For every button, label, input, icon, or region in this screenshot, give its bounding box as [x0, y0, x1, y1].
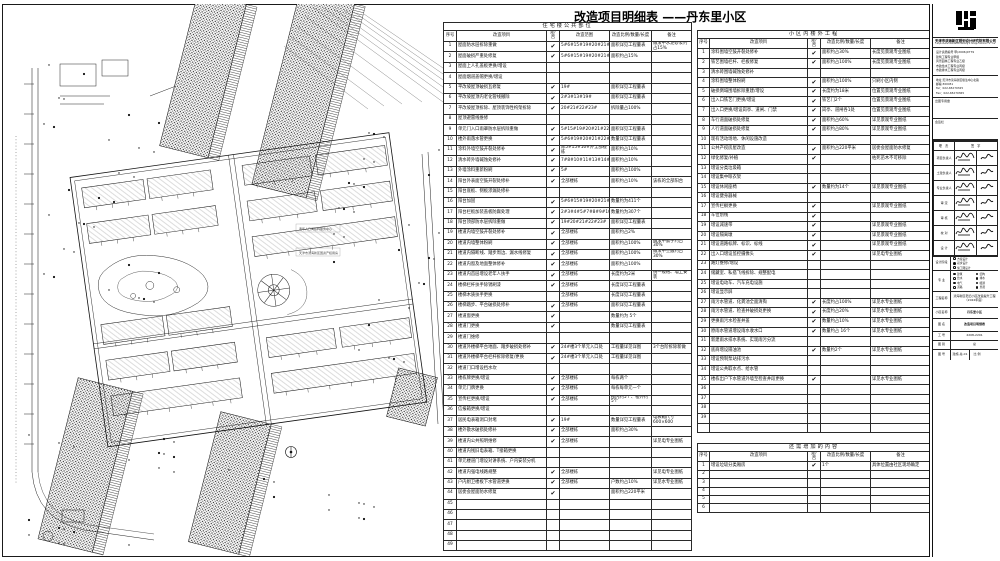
cell: 车位划线	[710, 212, 808, 222]
cell: 5#6#15#19#20#21#22#23#	[560, 42, 610, 52]
cell	[652, 333, 692, 343]
cell: 数量约2个	[821, 346, 871, 356]
column-header: 改造范围	[560, 31, 610, 42]
cell: 居民电表箱洞口封堵	[457, 416, 547, 426]
check-cell	[547, 114, 560, 124]
cell: 路灯维修/增设	[710, 260, 808, 270]
table-row: 28雨污水管道、检查井破损处更换✔长度约占20%详见水专业图纸	[698, 308, 931, 318]
row-number: 12	[444, 156, 457, 166]
column-header: 是/否	[808, 39, 821, 49]
table-row: 2铁艺围墙栏杆、栏板修复✔面积约占100%长度见景观专业图纸	[698, 59, 931, 69]
cell	[610, 447, 652, 457]
row-number: 30	[698, 327, 710, 337]
table-row: 36信报箱更换/增设	[444, 405, 692, 415]
cell	[821, 174, 871, 184]
table-title: 小区内楼外工程	[698, 31, 931, 39]
cell	[652, 260, 692, 270]
cell	[457, 530, 547, 540]
cell: 全部楼栋	[560, 437, 610, 447]
checkmark: ✔	[547, 218, 560, 228]
cell: 楼内约5个、楼外约5个	[610, 395, 652, 405]
signature-table: 职 责 签 字 项目负责人土建负责人专业负责人审 定审 核校 对设 计	[933, 141, 998, 257]
cell	[821, 193, 871, 203]
check-cell	[808, 174, 821, 184]
table-row: 38楼外散水破损处修补✔全部楼栋面积约占30%	[444, 426, 692, 436]
cell	[710, 404, 808, 414]
row-number: 4	[698, 487, 710, 495]
table-row: 16增设健身器械	[698, 193, 931, 203]
cell: 拆除量占100%	[610, 104, 652, 114]
table-row: 21增设道路标牌、标识、标线✔详见景观专业图纸	[698, 241, 931, 251]
cell	[821, 487, 871, 495]
row-number: 23	[698, 260, 710, 270]
table-row: 37居民电表箱洞口封堵✔19#数量详见工程量表电表箱尺寸600×600	[444, 416, 692, 426]
cell: 阳台底板、侧板渗漏处修补	[457, 187, 547, 197]
column-header: 改造项目	[457, 31, 547, 42]
signature-row: 土建负责人	[934, 165, 998, 180]
cell	[652, 457, 692, 467]
cell: 该栋的全部阳台	[652, 177, 692, 187]
cell	[821, 135, 871, 145]
number-field: 图 号 建施-总-01 比 例	[933, 350, 998, 360]
table-row: 42楼道内强电线路规整✔全部楼栋详见电专业图纸	[444, 468, 692, 478]
cell	[821, 394, 871, 404]
row-number: 26	[444, 302, 457, 312]
table-row: 30楼道外楼梯平台地面、踏步破损处修补✔24#楼3个单元入口处工程量详见详图3个…	[444, 343, 692, 353]
cell: 24#楼3个单元入口处	[560, 353, 610, 363]
table-row: 21楼道内隔断线、踏步周边、漏水线修复✔全部楼栋面积约占100%做法中空鼓约占3…	[444, 249, 692, 259]
cell: 长度详见工程量表	[610, 281, 652, 291]
table-row: 46	[444, 509, 692, 519]
checkmark: ✔	[808, 59, 821, 69]
table-row: 20楼道内墙整体粉刷✔全部楼栋面积约占100%做法中腻子约占30%	[444, 239, 692, 249]
cell	[821, 270, 871, 280]
table-row: 4	[698, 487, 931, 495]
cell: 面积约占100%	[821, 59, 871, 69]
column-header: 改造比例/数量/长度	[610, 31, 652, 42]
row-number: 31	[444, 353, 457, 363]
cell: 详见水专业图纸	[871, 318, 931, 328]
cell	[610, 364, 652, 374]
table-row: 2屋面破损严重处修复✔5#6#15#19#20#21#22#23#面积约占15%	[444, 52, 692, 62]
cell	[560, 499, 610, 509]
cell: 具体位置由社区现场确定	[871, 462, 931, 470]
table-row: 18阳台顶部防水层拆除重做✔19#20#21#22#23#面积详见工程量表	[444, 218, 692, 228]
row-number: 5	[444, 83, 457, 93]
cell: 平改坡屋顶内老化管线撤除	[457, 94, 547, 104]
major-option: 排水	[976, 276, 997, 280]
cell: 全部楼栋	[560, 395, 610, 405]
cell	[871, 479, 931, 487]
checkmark: ✔	[547, 426, 560, 436]
cell: 面积约占100%	[610, 239, 652, 249]
cell: 详见水专业图纸	[871, 298, 931, 308]
cell	[871, 470, 931, 478]
table-row: 35楼栋出户下水管道外墙至检查井段更换✔详见水专业图纸	[698, 375, 931, 385]
cell	[652, 541, 692, 551]
residential-table: 住宅楼公共部位 序号改造项目是/否改造范围改造比例/数量/长度备注 1屋面防水层…	[443, 22, 692, 551]
signature-row: 项目负责人	[934, 150, 998, 165]
checkmark: ✔	[547, 395, 560, 405]
check-cell	[808, 68, 821, 78]
cell: 详见景观专业图纸	[871, 222, 931, 232]
checkmark: ✔	[808, 78, 821, 88]
row-number: 27	[698, 298, 710, 308]
cell	[871, 487, 931, 495]
cell: 楼道门口增设挡水坎	[457, 364, 547, 374]
table-row: 13增设分类垃圾箱	[698, 164, 931, 174]
cell	[560, 333, 610, 343]
cell	[821, 479, 871, 487]
row-number: 4	[444, 73, 457, 83]
cell: 面积约占100%	[821, 78, 871, 88]
checkmark: ✔	[547, 302, 560, 312]
check-cell	[547, 541, 560, 551]
cell: 详见景观专业图纸	[871, 183, 931, 193]
signature-mark	[955, 225, 976, 240]
signature-stamp	[976, 150, 997, 165]
radio-icon	[976, 277, 979, 280]
cell	[871, 356, 931, 366]
cell	[652, 229, 692, 239]
cell	[652, 166, 692, 176]
block-field: 小区名称 丹东里小区	[933, 308, 998, 319]
cell: 底商增设隔油池	[710, 346, 808, 356]
cell: 涂料围墙整体粉刷	[710, 78, 808, 88]
checkmark: ✔	[808, 212, 821, 222]
checkmark: ✔	[547, 125, 560, 135]
radio-icon	[953, 286, 956, 289]
row-number: 20	[698, 231, 710, 241]
cell: 公共产权房屋改造	[710, 145, 808, 155]
cell: 增设公共取水点、给水管	[710, 366, 808, 376]
cell	[821, 68, 871, 78]
row-number: 37	[444, 416, 457, 426]
row-number: 16	[698, 193, 710, 203]
cell	[652, 197, 692, 207]
cell: 宣传栏橱更换	[710, 202, 808, 212]
cell: 24#楼3个单元入口处	[560, 343, 610, 353]
cell	[560, 405, 610, 415]
cell: 详见景观专业图纸	[871, 231, 931, 241]
radio-icon	[976, 273, 979, 276]
check-cell	[547, 73, 560, 83]
cell: 户内厨卫楼板下水管道更换	[457, 478, 547, 488]
cell: 楼道外楼梯平台地面、踏步破损处修补	[457, 343, 547, 353]
cell	[457, 541, 547, 551]
check-cell	[808, 270, 821, 280]
row-number: 14	[698, 174, 710, 184]
cell	[560, 73, 610, 83]
checkmark: ✔	[808, 462, 821, 470]
column-header: 改造比例/数量/长度	[821, 39, 871, 49]
sheet-number: 建施-总-01	[951, 350, 969, 360]
checkmark: ✔	[808, 107, 821, 117]
row-number: 47	[444, 520, 457, 530]
cell	[821, 231, 871, 241]
sheet-name: 改造项目明细表	[951, 319, 998, 331]
cell	[821, 289, 871, 299]
row-number: 5	[698, 496, 710, 504]
cell: 7#8#10#11#13#14#16#	[560, 156, 610, 166]
row-number: 24	[698, 270, 710, 280]
row-number: 8	[444, 114, 457, 124]
checkmark: ✔	[547, 416, 560, 426]
cell: 阳台顶部防水层拆除重做	[457, 218, 547, 228]
major-option: 结构	[976, 272, 997, 276]
cell: 5#	[560, 166, 610, 176]
check-cell	[808, 470, 821, 478]
row-number: 22	[444, 260, 457, 270]
cell	[821, 375, 871, 385]
cell: 面积详见工程量表	[610, 42, 652, 52]
table-row: 33楼栋牌更换/增设✔全部楼栋每栋两个	[444, 374, 692, 384]
check-cell	[547, 499, 560, 509]
cell: 增设预制泵站排污水	[710, 356, 808, 366]
cell	[871, 193, 931, 203]
cell: 每栋每单元一个	[610, 385, 652, 395]
radio-icon	[953, 273, 956, 276]
cell: 雨污水管道、检查井破损处更换	[710, 308, 808, 318]
checkmark: ✔	[547, 489, 560, 499]
cell: 5#15#19#20#21#22#23#	[560, 125, 610, 135]
cell: 屋面上人孔盖板更换/增设	[457, 62, 547, 72]
stage-option: 施工图设计	[953, 266, 996, 270]
radio-icon	[953, 277, 956, 280]
check-cell	[547, 447, 560, 457]
marker-circle	[286, 447, 297, 458]
row-number: 1	[444, 42, 457, 52]
cell	[560, 62, 610, 72]
table-row: 32楼道门口增设挡水坎	[444, 364, 692, 374]
cell	[457, 520, 547, 530]
signature-stamp	[976, 195, 997, 210]
cell: 电表箱尺寸600×600	[652, 416, 692, 426]
cell	[871, 135, 931, 145]
cell	[652, 302, 692, 312]
cell	[652, 73, 692, 83]
row-number: 42	[444, 468, 457, 478]
table-row: 1涂料围墙空鼓开裂处修补✔面积约占30%长度见景观专业图纸	[698, 49, 931, 59]
table-row: 24储藏室、私搭飞线拆除、规整配电	[698, 270, 931, 280]
cell	[610, 405, 652, 415]
cell: 面积详见工程量表	[610, 83, 652, 93]
cell	[871, 385, 931, 395]
cell	[821, 404, 871, 414]
checkmark: ✔	[547, 135, 560, 145]
checkmark: ✔	[547, 353, 560, 363]
contact-info: 地址:天津市滨海新区塘沽中心北路邮编:300451Tel：022-6527032…	[933, 76, 998, 98]
table-row: 7平改坡屋顶拆除、屋顶装饰性构架拆除✔20#21#22#23#拆除量占100%	[444, 104, 692, 114]
check-cell	[547, 457, 560, 467]
checkmark: ✔	[547, 104, 560, 114]
cell: 详见电专业图纸	[652, 468, 692, 478]
cell: 增设健身器械	[710, 193, 808, 203]
row-number: 4	[698, 78, 710, 88]
sign-role: 设 计	[934, 240, 955, 255]
cell	[610, 73, 652, 83]
cell: 详见水专业图纸	[652, 478, 692, 488]
row-number: 29	[698, 318, 710, 328]
checkmark: ✔	[547, 83, 560, 93]
row-number: 7	[698, 107, 710, 117]
sheet-field: 图 名 改造项目明细表	[933, 319, 998, 332]
check-cell	[547, 520, 560, 530]
cell	[610, 541, 652, 551]
cell: 详见电专业图纸	[871, 250, 931, 260]
cell	[710, 414, 808, 424]
check-cell	[808, 479, 821, 487]
cell: 面积约占100%	[610, 166, 652, 176]
cell: 屋顶避雷线维修	[457, 114, 547, 124]
cell	[710, 470, 808, 478]
site-plan: 老年人日间照料服务中心 天津市滨海新区国资产权用房	[2, 4, 447, 557]
row-number: 2	[698, 470, 710, 478]
cell: 3个台阶拆除新做	[652, 343, 692, 353]
check-cell	[808, 487, 821, 495]
cell: 屋面防水层拆除重做	[457, 42, 547, 52]
cell	[652, 385, 692, 395]
cell	[821, 470, 871, 478]
row-number: 17	[444, 208, 457, 218]
table-row: 16阳台加固✔5#6#15#19#20#21#22#23#数量约为411个	[444, 197, 692, 207]
table-row: 6平改坡屋顶内老化管线撤除✔2#3#13#19#面积详见工程量表	[444, 94, 692, 104]
table-row: 27雨污水管道、化粪池全面清掏✔长度约占100%详见水专业图纸	[698, 298, 931, 308]
table-row: 3	[698, 479, 931, 487]
table-row: 10楼外雨落水管更换✔5#6#19#20#21#22#23#数量详见工程量表	[444, 135, 692, 145]
cell	[871, 504, 931, 512]
check-cell	[808, 394, 821, 404]
stamp-box: 出图专用章	[933, 98, 998, 119]
signature-mark	[955, 180, 976, 195]
row-number: 27	[444, 312, 457, 322]
checkmark: ✔	[547, 229, 560, 239]
cell	[560, 520, 610, 530]
stage-field: 设计阶段 方案设计初步设计施工图设计	[933, 257, 998, 271]
checkmark: ✔	[547, 385, 560, 395]
row-number: 39	[444, 437, 457, 447]
cell	[821, 164, 871, 174]
cell	[610, 520, 652, 530]
table-row: 35宣传栏更换/增设✔全部楼栋楼内约5个、楼外约5个	[444, 395, 692, 405]
cell: 面积详见工程量表	[610, 218, 652, 228]
cell: 平改坡屋顶破损瓦修复	[457, 83, 547, 93]
row-number: 31	[698, 337, 710, 347]
cell	[652, 281, 692, 291]
cell: 楼道窗更换	[457, 312, 547, 322]
major-option: 给水	[953, 276, 974, 280]
cell: 楼道内公共照明维修	[457, 437, 547, 447]
cell: 数量约为 5个	[610, 312, 652, 322]
scale-value	[984, 350, 998, 360]
check-cell	[547, 405, 560, 415]
cell: 数量详见工程量表	[610, 322, 652, 332]
table-row: 4屋面烟道盖帽更换/增设	[444, 73, 692, 83]
category-field: 图 别 总	[933, 341, 998, 350]
table-row: 5平改坡屋顶破损瓦修复✔19#面积详见工程量表	[444, 83, 692, 93]
row-number: 39	[698, 414, 710, 424]
row-number: 41	[444, 457, 457, 467]
cell: 面积约占10%	[610, 145, 652, 155]
cell: 全部楼栋	[560, 426, 610, 436]
cell: 面积约占10%	[610, 177, 652, 187]
cell	[821, 385, 871, 395]
row-number: 43	[444, 478, 457, 488]
major-option: 建筑	[953, 272, 974, 276]
table-row: 9人行道面破损处修复✔面积约占80%详见景观专业图纸	[698, 126, 931, 136]
drawing-sheet: 老年人日间照料服务中心 天津市滨海新区国资产权用房 改造项目明细表 ——丹东里小…	[0, 0, 1000, 561]
cell	[652, 187, 692, 197]
category-value: 总	[951, 341, 998, 349]
cell: 做法中腻子约占30%	[652, 239, 692, 249]
cell	[652, 135, 692, 145]
job-number: 2208-2201	[951, 332, 998, 340]
cell: 做法中空鼓约占30%	[652, 249, 692, 259]
row-number: 18	[698, 212, 710, 222]
cell: 楼道内窗及地面整体修补	[457, 260, 547, 270]
checkmark: ✔	[808, 222, 821, 232]
cell: 面积详见工程量表	[610, 302, 652, 312]
cell: 面积约占100%	[610, 260, 652, 270]
sign-role: 校 对	[934, 225, 955, 240]
checkmark: ✔	[547, 52, 560, 62]
cell	[610, 468, 652, 478]
table-row: 8屋顶避雷线维修	[444, 114, 692, 124]
cell: 破损倒塌围墙拆除重建/增设	[710, 87, 808, 97]
table-row: 3清水砖围墙碱蚀处修补	[698, 68, 931, 78]
cell: 涂料围墙空鼓开裂处修补	[710, 49, 808, 59]
title-block: 天津市滨海新区规划设计研究院有限公司 Tianjin Binhai New Ar…	[929, 4, 997, 557]
checkmark: ✔	[547, 145, 560, 155]
row-number: 5	[698, 87, 710, 97]
signature-stamp	[976, 180, 997, 195]
row-number: 3	[698, 479, 710, 487]
checkmark: ✔	[547, 166, 560, 176]
cell: 位置见景观专业图纸	[871, 97, 931, 107]
cell: 阳台栏板加装盖板防腐处理	[457, 208, 547, 218]
cell	[652, 509, 692, 519]
cell	[871, 289, 931, 299]
table-title: 还需增加的内容	[698, 444, 931, 452]
cell: 原雨水管道增设雨水收水口	[710, 327, 808, 337]
table-row: 18车位划线✔	[698, 212, 931, 222]
cell	[821, 366, 871, 376]
cell	[871, 279, 931, 289]
cell: 铁艺门2个	[821, 97, 871, 107]
cell: 阳台加固	[457, 197, 547, 207]
sign-header-role: 职 责	[934, 141, 955, 150]
check-cell	[808, 337, 821, 347]
table-row: 17阳台栏板加装盖板防腐处理✔2#3#4#5#7#8#9#10#11#13#14…	[444, 208, 692, 218]
table-row: 12清水砖外墙碱蚀处修补✔7#8#10#11#13#14#16#面积约占10%	[444, 156, 692, 166]
checkmark: ✔	[547, 156, 560, 166]
outdoor-table: 小区内楼外工程 序号改造项目是/否改造比例/数量/长度备注 1涂料围墙空鼓开裂处…	[697, 30, 931, 433]
checkmark: ✔	[547, 343, 560, 353]
row-number: 36	[698, 385, 710, 395]
cell	[652, 156, 692, 166]
cell: 面积约占30%	[821, 49, 871, 59]
cell	[610, 457, 652, 467]
cell: 楼道内墙整体粉刷	[457, 239, 547, 249]
row-number: 40	[444, 447, 457, 457]
row-number: 13	[698, 164, 710, 174]
cell	[871, 174, 931, 184]
cell: 信报箱更换/增设	[457, 405, 547, 415]
checkmark: ✔	[808, 308, 821, 318]
table-row: 14增设集中晾衣架	[698, 174, 931, 184]
project-name: 滨海新区老旧小区改造提升工程（2022年度）	[951, 292, 998, 307]
cell: 涂料外墙空鼓开裂处修补	[457, 145, 547, 155]
